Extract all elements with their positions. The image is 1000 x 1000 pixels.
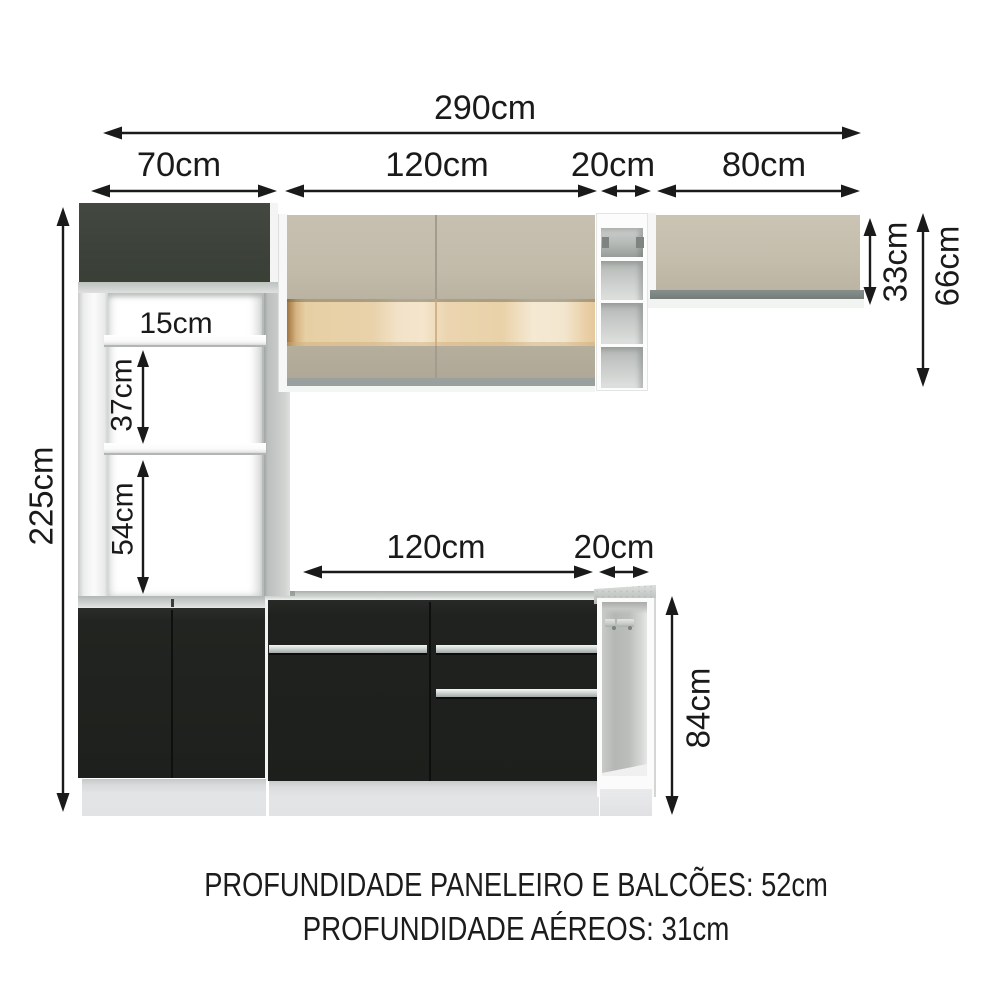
svg-text:66cm: 66cm: [929, 226, 966, 307]
svg-text:80cm: 80cm: [722, 146, 806, 184]
svg-text:84cm: 84cm: [680, 668, 717, 749]
svg-text:120cm: 120cm: [385, 146, 489, 184]
svg-text:20cm: 20cm: [571, 146, 655, 184]
svg-text:290cm: 290cm: [434, 89, 536, 127]
svg-text:120cm: 120cm: [386, 528, 485, 565]
svg-text:33cm: 33cm: [877, 222, 914, 303]
svg-text:225cm: 225cm: [23, 446, 60, 545]
svg-text:70cm: 70cm: [137, 146, 221, 184]
svg-text:54cm: 54cm: [107, 482, 140, 555]
svg-text:15cm: 15cm: [139, 307, 212, 340]
svg-text:37cm: 37cm: [106, 358, 139, 431]
svg-text:20cm: 20cm: [574, 528, 655, 565]
